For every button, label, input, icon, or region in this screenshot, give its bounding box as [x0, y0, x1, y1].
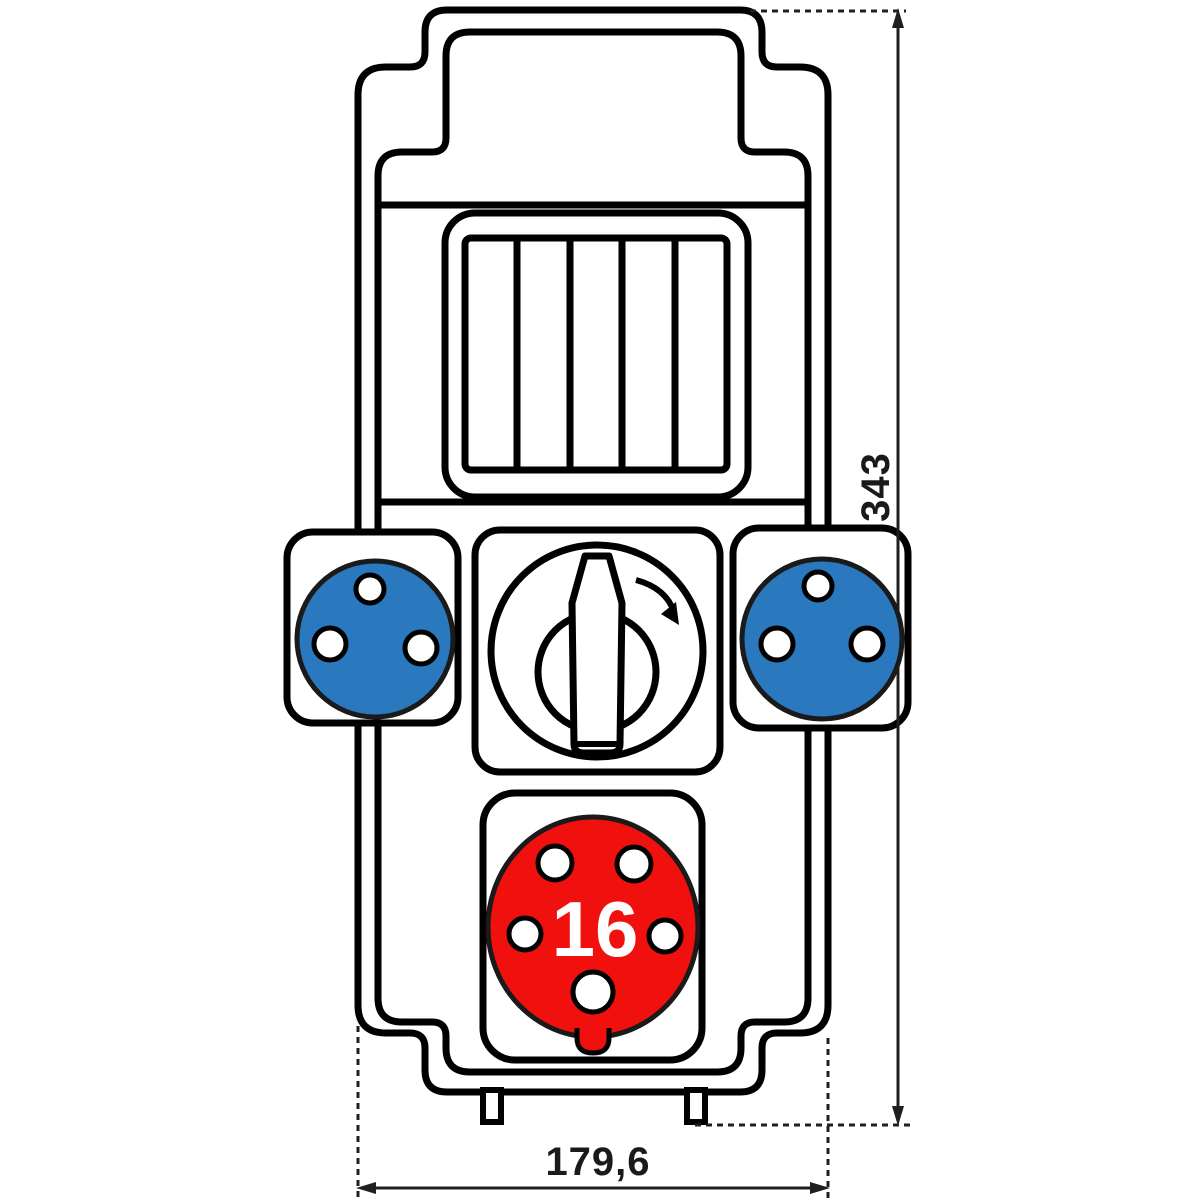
- contact-hole-right: [405, 632, 437, 664]
- cee-socket-keyway-tab: [577, 1028, 609, 1053]
- earth-pin-hole-right-socket: [804, 572, 832, 600]
- cee-pin-hole-top-left: [538, 846, 572, 880]
- earth-pin-hole-left-socket: [356, 575, 384, 603]
- breaker-window-slots: [465, 238, 727, 470]
- drawing-svg: [0, 0, 1200, 1200]
- technical-drawing-canvas: 16 343 179,6: [0, 0, 1200, 1200]
- foot-left: [483, 1090, 501, 1122]
- contact-hole-right: [851, 628, 883, 660]
- dim-label-height: 343: [854, 427, 898, 547]
- dim-label-width: 179,6: [493, 1140, 703, 1184]
- cee-pin-hole-bottom: [573, 972, 613, 1012]
- cee-pin-hole-top-right: [617, 847, 651, 881]
- contact-hole-left: [314, 628, 346, 660]
- arrowhead-down-icon: [892, 1106, 904, 1126]
- cee-rating-label: 16: [495, 889, 695, 969]
- foot-right: [687, 1090, 705, 1122]
- contact-hole-left: [761, 628, 793, 660]
- rotary-switch-knob: [572, 556, 622, 753]
